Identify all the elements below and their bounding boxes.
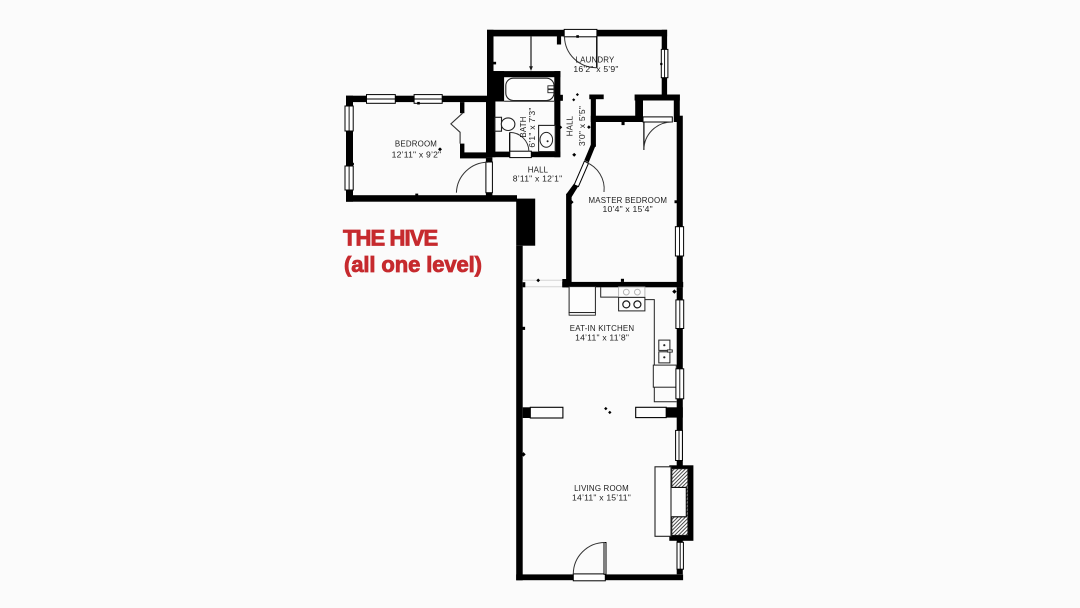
svg-text:6’1" x 7’3": 6’1" x 7’3"	[527, 107, 537, 147]
svg-text:BEDROOM: BEDROOM	[395, 139, 437, 148]
svg-text:14’11" x 15’11": 14’11" x 15’11"	[572, 492, 631, 502]
svg-text:12’11" x 9’2": 12’11" x 9’2"	[392, 149, 442, 159]
svg-text:HALL: HALL	[566, 115, 575, 136]
svg-text:THE HIVE: THE HIVE	[343, 226, 437, 251]
svg-text:3’0" x 5’5": 3’0" x 5’5"	[577, 106, 587, 146]
svg-text:14’11" x 11’8": 14’11" x 11’8"	[575, 332, 629, 342]
svg-text:16’2" x 5’9": 16’2" x 5’9"	[573, 64, 618, 74]
svg-text:8’11" x 12’1": 8’11" x 12’1"	[513, 173, 563, 183]
svg-text:10’4" x 15’4": 10’4" x 15’4"	[603, 204, 653, 214]
svg-text:(all one level): (all one level)	[344, 252, 482, 277]
